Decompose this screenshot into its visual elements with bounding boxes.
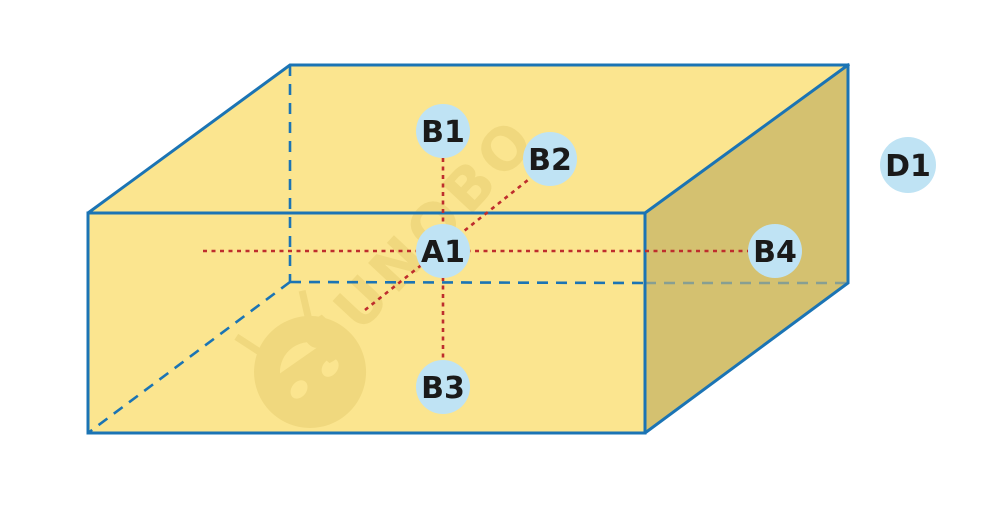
box-diagram: SUNOBO A1 B1 B2 B3 — [0, 0, 1000, 517]
node-b3-label: B3 — [421, 371, 465, 406]
node-b4: B4 — [748, 224, 802, 278]
node-a1-label: A1 — [421, 235, 465, 270]
node-b1-label: B1 — [421, 115, 465, 150]
node-d1: D1 — [880, 137, 936, 193]
node-b2: B2 — [523, 132, 577, 186]
node-a1: A1 — [416, 224, 470, 278]
node-b3: B3 — [416, 360, 470, 414]
node-b1: B1 — [416, 104, 470, 158]
diagram-canvas: SUNOBO A1 B1 B2 B3 — [0, 0, 1000, 517]
node-b2-label: B2 — [528, 143, 572, 178]
node-b4-label: B4 — [753, 235, 797, 270]
node-d1-label: D1 — [885, 149, 931, 184]
